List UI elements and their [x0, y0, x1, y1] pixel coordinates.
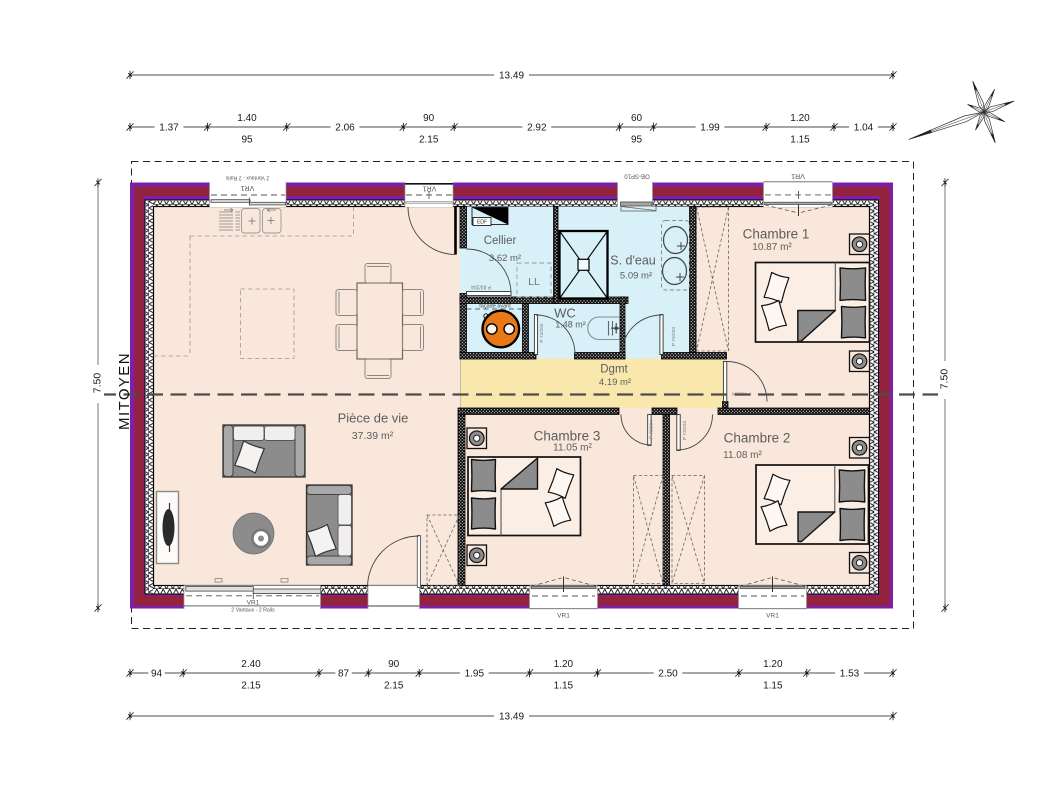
svg-text:Chambre 1: Chambre 1	[743, 226, 810, 241]
svg-text:2 Vantaux - 2 Rails: 2 Vantaux - 2 Rails	[225, 175, 269, 181]
svg-text:P 73/204: P 73/204	[539, 323, 545, 342]
svg-text:EDF: EDF	[477, 219, 487, 225]
svg-text:2.15: 2.15	[241, 681, 261, 692]
svg-text:5.09 m²: 5.09 m²	[620, 270, 652, 281]
svg-text:P 73/204: P 73/204	[671, 327, 677, 346]
svg-text:P 73/204: P 73/204	[682, 421, 688, 440]
svg-text:S. d'eau: S. d'eau	[610, 254, 656, 268]
svg-text:37.39 m²: 37.39 m²	[352, 430, 394, 442]
svg-text:95: 95	[631, 135, 643, 146]
svg-text:1.40: 1.40	[237, 113, 257, 124]
svg-text:1.95: 1.95	[465, 669, 485, 680]
svg-text:Dgmt: Dgmt	[600, 364, 628, 376]
svg-text:2.15: 2.15	[384, 681, 404, 692]
svg-text:WC: WC	[554, 306, 576, 321]
svg-text:2.50: 2.50	[658, 669, 678, 680]
svg-text:1.20: 1.20	[763, 659, 783, 670]
svg-text:Cellier: Cellier	[484, 235, 517, 247]
svg-text:1.48 m²: 1.48 m²	[555, 320, 586, 330]
svg-text:1.15: 1.15	[554, 681, 574, 692]
svg-text:11.08 m²: 11.08 m²	[723, 450, 762, 461]
svg-text:Pièce de vie: Pièce de vie	[338, 411, 409, 426]
svg-text:60: 60	[631, 113, 643, 124]
svg-text:2.92: 2.92	[527, 123, 547, 134]
svg-text:VR1: VR1	[247, 600, 260, 607]
svg-text:4.19 m²: 4.19 m²	[599, 377, 631, 388]
svg-text:1.53: 1.53	[840, 669, 860, 680]
svg-text:2.06: 2.06	[335, 123, 355, 134]
svg-text:OB-SP10: OB-SP10	[624, 172, 650, 178]
svg-text:VR1: VR1	[791, 172, 805, 179]
svg-text:1.37: 1.37	[159, 123, 179, 134]
svg-text:1.04: 1.04	[854, 123, 874, 134]
svg-text:95: 95	[241, 135, 253, 146]
svg-text:1.15: 1.15	[790, 135, 810, 146]
svg-text:VR1: VR1	[557, 612, 570, 619]
svg-text:7.50: 7.50	[938, 369, 950, 390]
svg-text:P 73/204: P 73/204	[649, 420, 655, 439]
svg-text:2 Vantaux - 2 Rails: 2 Vantaux - 2 Rails	[231, 608, 275, 614]
svg-text:Chambre 3: Chambre 3	[534, 429, 601, 444]
svg-text:1.20: 1.20	[790, 113, 810, 124]
svg-text:VR1: VR1	[423, 184, 437, 191]
svg-text:87: 87	[338, 669, 350, 680]
svg-text:façade avant: façade avant	[479, 303, 511, 309]
svg-text:2.15: 2.15	[419, 135, 439, 146]
svg-text:MITOYEN: MITOYEN	[116, 352, 133, 430]
svg-text:90: 90	[388, 659, 400, 670]
svg-text:90: 90	[423, 113, 435, 124]
svg-text:13.49: 13.49	[499, 71, 524, 82]
svg-text:10.87 m²: 10.87 m²	[752, 242, 792, 253]
svg-text:VR1: VR1	[241, 184, 255, 191]
svg-text:VR1: VR1	[766, 612, 779, 619]
svg-text:1.20: 1.20	[554, 659, 574, 670]
svg-text:LL: LL	[528, 276, 540, 288]
svg-text:13.49: 13.49	[499, 712, 524, 723]
svg-text:2.40: 2.40	[241, 659, 261, 670]
svg-text:3.62 m²: 3.62 m²	[489, 253, 521, 264]
svg-text:1.15: 1.15	[763, 681, 783, 692]
svg-text:1.99: 1.99	[700, 123, 720, 134]
svg-text:7.50: 7.50	[91, 373, 103, 394]
svg-text:94: 94	[151, 669, 163, 680]
svg-text:P 83/204: P 83/204	[471, 283, 491, 289]
svg-text:11.05 m²: 11.05 m²	[553, 443, 592, 454]
svg-text:Chambre 2: Chambre 2	[724, 430, 791, 445]
